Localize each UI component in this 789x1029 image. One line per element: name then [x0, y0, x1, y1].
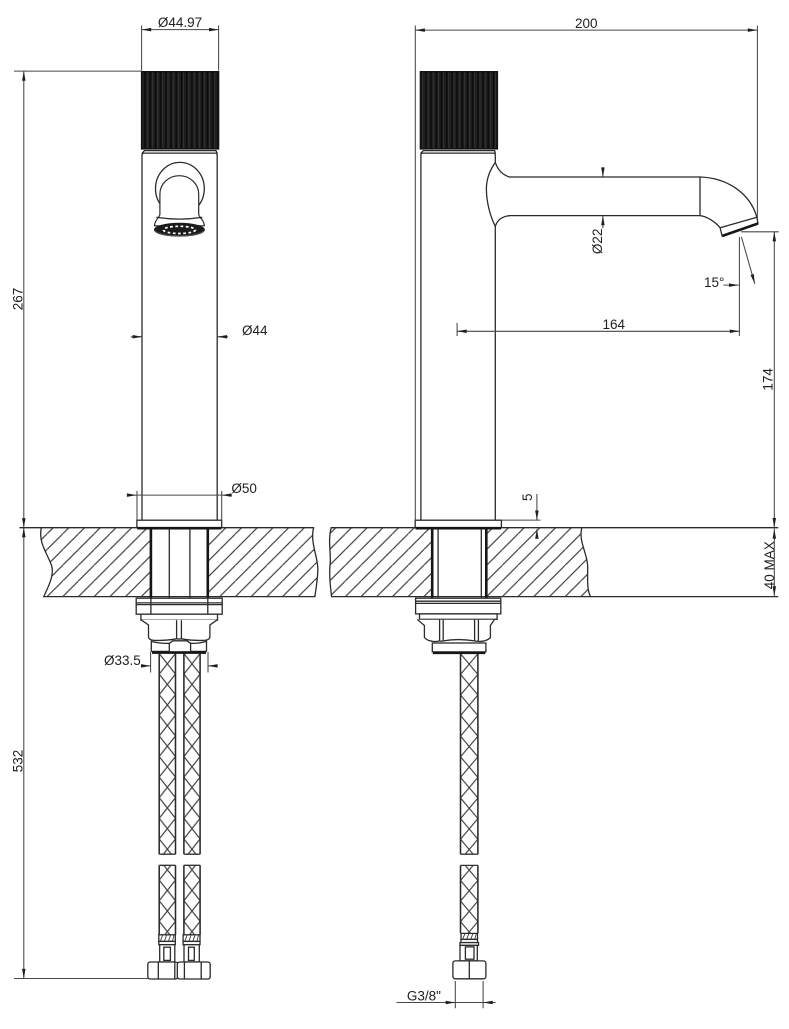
svg-text:532: 532	[11, 750, 26, 773]
svg-text:Ø44.97: Ø44.97	[158, 15, 202, 30]
svg-text:Ø50: Ø50	[231, 481, 257, 496]
svg-text:267: 267	[11, 288, 26, 311]
svg-text:174: 174	[760, 368, 775, 391]
svg-text:200: 200	[575, 16, 598, 31]
svg-text:Ø44: Ø44	[242, 323, 268, 338]
svg-text:G3/8": G3/8"	[407, 989, 441, 1004]
svg-text:Ø33.5: Ø33.5	[104, 653, 141, 668]
svg-text:15°: 15°	[704, 275, 724, 290]
svg-text:Ø22: Ø22	[590, 229, 605, 255]
svg-text:40 MAX: 40 MAX	[762, 541, 777, 589]
svg-text:164: 164	[603, 317, 626, 332]
svg-text:5: 5	[520, 494, 535, 502]
